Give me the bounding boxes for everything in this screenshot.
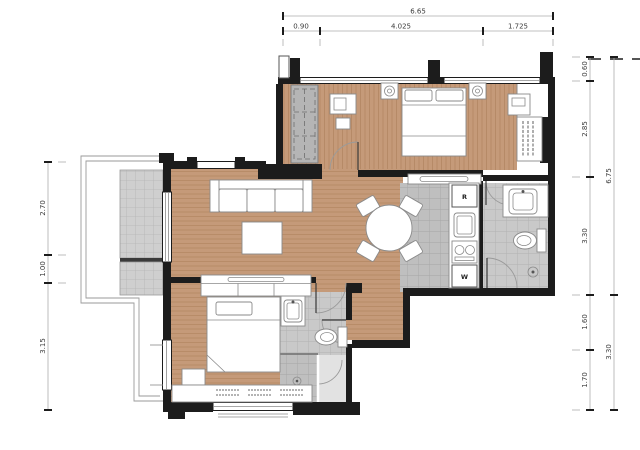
dim-left-seg1: 2.70 (39, 200, 47, 216)
column-top-right (540, 52, 553, 77)
dimensions-left: 2.70 1.00 3.15 (39, 162, 66, 410)
ac-ledge (517, 117, 542, 161)
sofa (210, 180, 312, 212)
wall-kitchen-bath1-bottom (403, 288, 555, 296)
dining-table (366, 205, 412, 251)
wall-stub-a (187, 157, 197, 161)
balcony (81, 156, 163, 401)
nightstand-right (469, 83, 486, 99)
bedroom2-desk (172, 385, 312, 402)
wall-bath2-right-lower (346, 344, 352, 402)
wall-right (548, 77, 555, 296)
dim-right-seg5: 1.70 (581, 372, 589, 388)
dimensions-right: 0.60 2.85 3.30 1.60 1.70 6.75 3.30 (572, 57, 618, 410)
bedroom1-stool (336, 118, 350, 129)
floor-plan-canvas: R W (0, 0, 640, 450)
wall-top-left-block (276, 84, 283, 169)
dim-right-seg3: 3.30 (581, 228, 589, 244)
bath1-faucet (522, 190, 525, 193)
bath2-faucet (292, 301, 295, 304)
column-entry (290, 58, 300, 78)
balcony-mat-divider (120, 258, 163, 262)
bath2-toilet (315, 327, 347, 347)
wall-entry-bottom (258, 164, 322, 179)
shower2-drain (296, 380, 299, 383)
dim-right-total1: 6.75 (605, 168, 613, 184)
wall-corner-living (159, 153, 174, 163)
dim-top-total: 6.65 (410, 8, 426, 16)
balcony-ac-mat-1 (120, 170, 163, 258)
nightstand-left (381, 83, 398, 99)
bedroom2-bed (207, 297, 280, 372)
dim-left-seg2: 1.00 (39, 261, 47, 277)
washer-label: W (461, 273, 468, 281)
column-top-mid (428, 60, 440, 77)
dim-right-seg2: 2.85 (581, 121, 589, 137)
wall-bath2-stub (346, 283, 362, 293)
entry-door-leaf (279, 56, 289, 78)
dim-left-seg3: 3.15 (39, 338, 47, 354)
wall-bath1-top (483, 175, 555, 181)
wall-bottom-right (293, 402, 360, 415)
bedroom1-desk (508, 94, 530, 115)
column-bottom-left (168, 408, 185, 419)
wall-corridor-right (403, 292, 410, 348)
kitchen-counter-top (408, 174, 481, 184)
balcony-ac-mat-2 (120, 262, 163, 295)
dim-top-seg2: 4.025 (391, 23, 411, 31)
dim-right-seg4: 1.60 (581, 314, 589, 330)
bedroom1-bed (402, 88, 466, 156)
wall-stub-b (235, 157, 245, 161)
bedroom2-wardrobe-tv (201, 275, 311, 296)
dim-top-seg1: 0.90 (293, 23, 309, 31)
wall-corridor-bottom (352, 340, 410, 348)
dim-right-total2: 3.30 (605, 344, 613, 360)
dim-top-seg3: 1.725 (508, 23, 528, 31)
window-living-top (197, 162, 235, 169)
bedroom2-stool (182, 369, 205, 385)
dimensions-top: 6.65 0.90 4.025 1.725 (283, 8, 553, 47)
refrigerator-label: R (462, 193, 467, 201)
window-bedroom2-left (163, 340, 172, 390)
floor-plan-drawing: R W (0, 0, 640, 450)
cooktop (452, 241, 477, 263)
wall-living-left-upper (163, 169, 171, 192)
balcony-sliding-door (163, 192, 172, 262)
water-heater-icon (532, 271, 535, 274)
coffee-table (242, 222, 282, 254)
dim-right-seg1: 0.60 (581, 61, 589, 77)
